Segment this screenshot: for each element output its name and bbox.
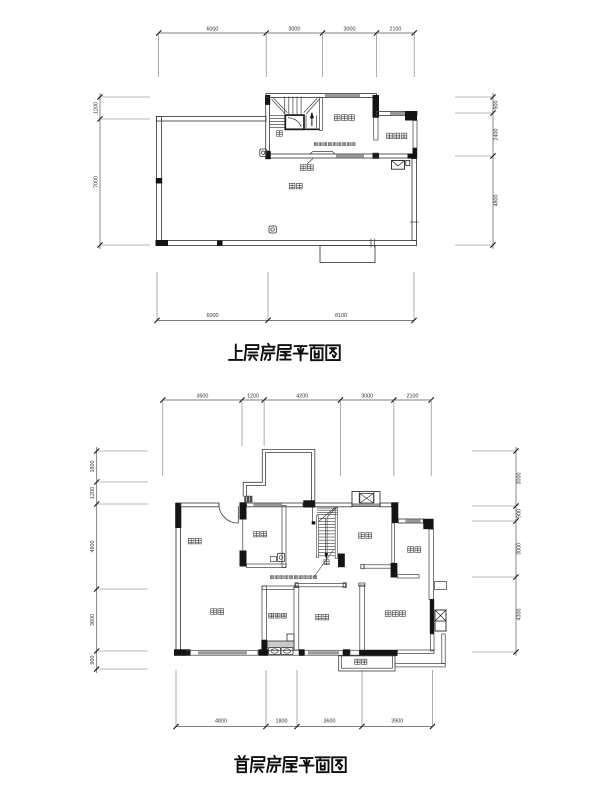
svg-text:3600: 3600 <box>324 719 336 725</box>
svg-text:6000: 6000 <box>206 27 218 33</box>
svg-text:3900: 3900 <box>391 719 403 725</box>
svg-text:4800: 4800 <box>215 719 227 725</box>
svg-text:1200: 1200 <box>90 487 96 499</box>
svg-text:3600: 3600 <box>196 394 208 400</box>
svg-text:3000: 3000 <box>288 27 300 33</box>
svg-text:1200: 1200 <box>94 102 100 114</box>
svg-text:4600: 4600 <box>90 541 96 553</box>
svg-text:2400: 2400 <box>494 129 500 141</box>
svg-text:6000: 6000 <box>207 313 219 319</box>
svg-text:900: 900 <box>517 509 523 518</box>
svg-text:3000: 3000 <box>344 27 356 33</box>
svg-text:1800: 1800 <box>90 461 96 473</box>
svg-text:8100: 8100 <box>335 313 347 319</box>
svg-text:2100: 2100 <box>407 394 419 400</box>
svg-text:3000: 3000 <box>517 473 523 485</box>
svg-text:900: 900 <box>90 656 96 665</box>
svg-text:3600: 3600 <box>90 614 96 626</box>
svg-text:900: 900 <box>494 101 500 110</box>
svg-text:4300: 4300 <box>517 609 523 621</box>
svg-text:3000: 3000 <box>361 394 373 400</box>
svg-text:1800: 1800 <box>276 719 288 725</box>
svg-text:7000: 7000 <box>94 176 100 188</box>
svg-text:3000: 3000 <box>517 543 523 555</box>
svg-text:1200: 1200 <box>247 394 259 400</box>
svg-text:2100: 2100 <box>389 27 401 33</box>
svg-text:4800: 4800 <box>494 195 500 207</box>
svg-text:4200: 4200 <box>296 394 308 400</box>
